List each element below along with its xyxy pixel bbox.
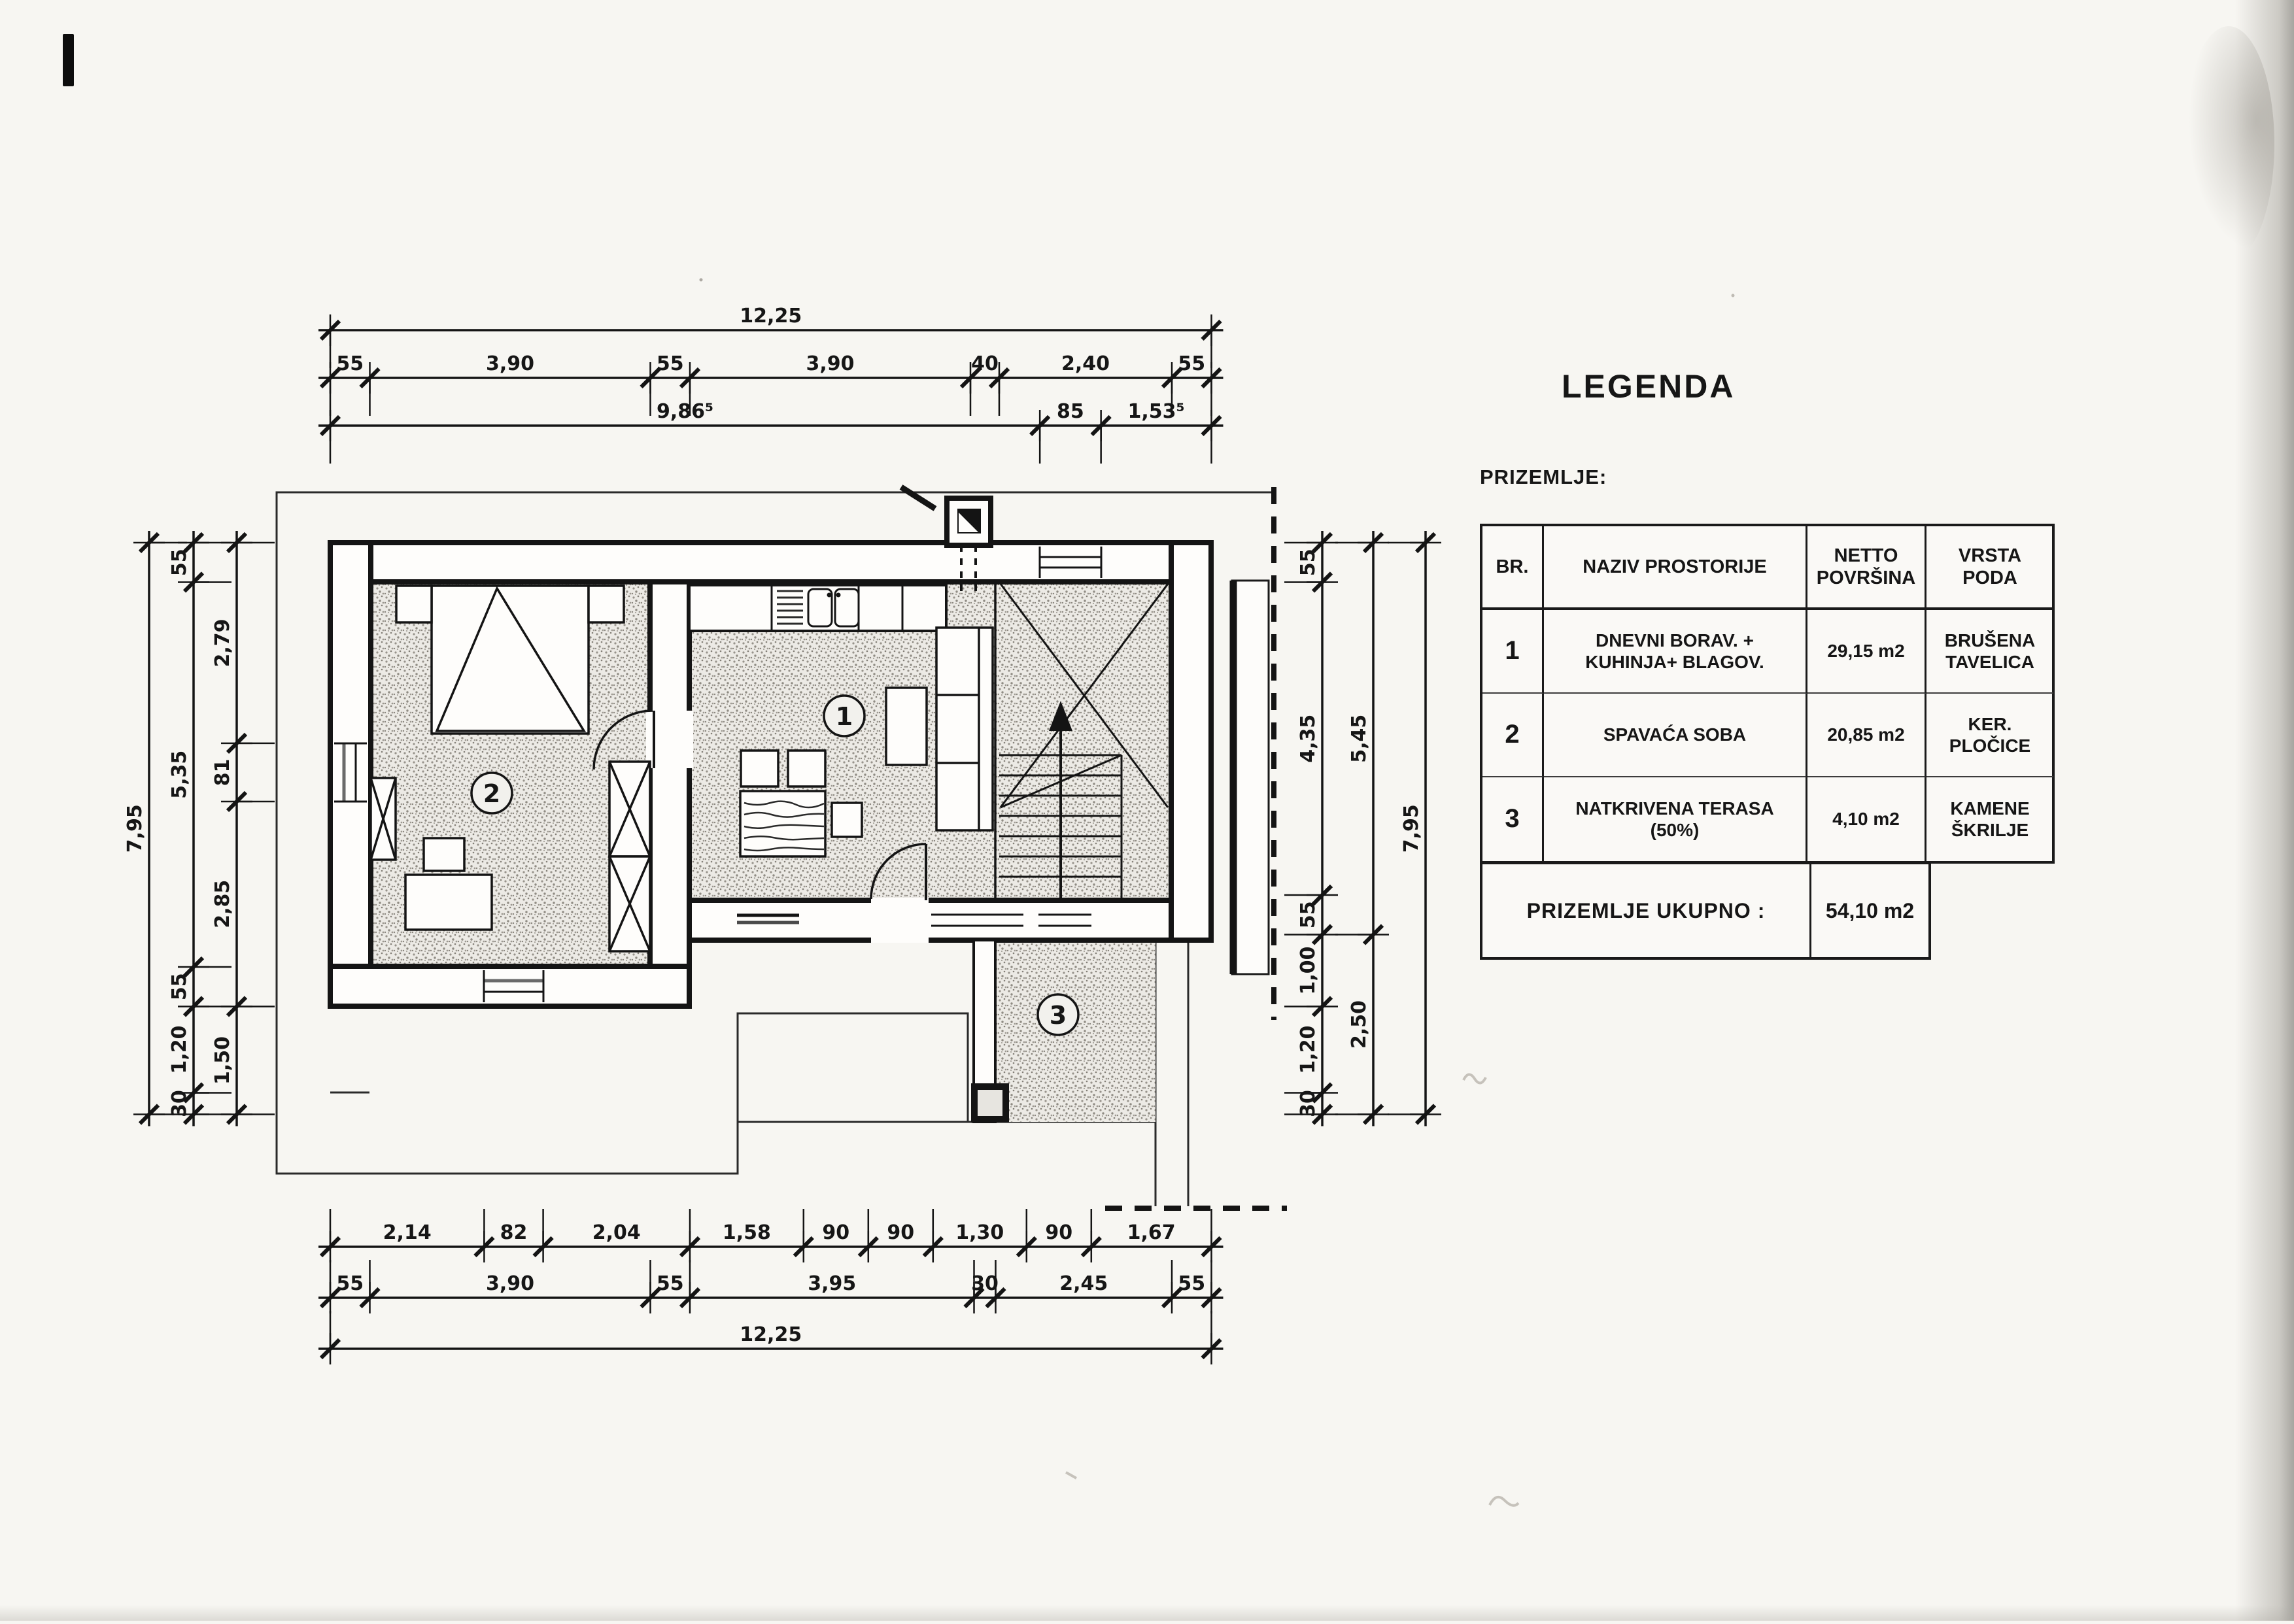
dim-label: 2,85 — [211, 880, 234, 928]
window-right-of-door — [931, 904, 1023, 936]
chair — [788, 751, 825, 787]
registration-mark — [63, 34, 74, 86]
dim-label: 1,20 — [168, 1025, 191, 1074]
scan-corner-curl — [2183, 26, 2274, 262]
dim-label: 90 — [887, 1221, 914, 1244]
dim-label: 55 — [336, 1272, 364, 1295]
dim-label: 55 — [1297, 901, 1320, 928]
window-left-wall — [334, 743, 367, 802]
room-1-label: 1 — [824, 696, 865, 736]
dim-label: 40 — [971, 352, 999, 375]
wall-room1-bottom — [689, 900, 1171, 940]
dim-chain-bottom-detail: 553,90553,95302,4555 — [318, 1260, 1224, 1313]
dim-label: 2,79 — [211, 618, 234, 667]
svg-text:1: 1 — [836, 702, 853, 731]
window-top-wall — [1038, 547, 1103, 578]
row-area: 29,15 m2 — [1807, 610, 1926, 694]
dim-chain-right-inner: 554,35551,001,2030 — [1284, 531, 1338, 1126]
row-area: 4,10 m2 — [1807, 777, 1926, 861]
faucet-dot — [827, 593, 832, 598]
dim-label: 1,53⁵ — [1127, 400, 1184, 423]
faucet-dot — [836, 593, 841, 598]
row-floor: KER. PLOČICE — [1926, 694, 2053, 777]
row-name: NATKRIVENA TERASA (50%) — [1544, 777, 1807, 861]
legend-row: 3 NATKRIVENA TERASA (50%) 4,10 m2 KAMENE… — [1482, 777, 2052, 861]
dim-label: 2,14 — [383, 1221, 432, 1244]
dim-chain-top-detail: 553,90553,90402,4055 — [318, 352, 1224, 416]
row-name: DNEVNI BORAV. + KUHINJA+ BLAGOV. — [1544, 610, 1807, 694]
row-br: 1 — [1482, 610, 1544, 694]
dim-label: 3,90 — [806, 352, 854, 375]
room-3-label: 3 — [1038, 994, 1078, 1035]
dim-label: 2,04 — [592, 1221, 641, 1244]
dim-label: 7,95 — [124, 804, 146, 853]
dim-label: 30 — [971, 1272, 999, 1295]
header-floor: VRSTA PODA — [1926, 526, 2053, 610]
dim-chain-right-overall: 7,95 — [1388, 531, 1441, 1126]
dim-label: 55 — [657, 352, 684, 375]
legend-row: 2 SPAVAĆA SOBA 20,85 m2 KER. PLOČICE — [1482, 694, 2052, 777]
row-br: 3 — [1482, 777, 1544, 861]
dim-label: 4,35 — [1297, 715, 1320, 763]
dim-label: 1,58 — [723, 1221, 771, 1244]
row-br: 2 — [1482, 694, 1544, 777]
dim-label: 90 — [1045, 1221, 1072, 1244]
window-room2-bottom — [484, 970, 543, 1002]
header-name: NAZIV PROSTORIJE — [1544, 526, 1807, 610]
room-2-label: 2 — [471, 773, 512, 813]
terrace-column — [974, 1087, 1006, 1119]
dim-label: 1,50 — [211, 1036, 234, 1085]
dim-chain-bottom-inner: 2,14822,041,5890901,30901,67 — [318, 1209, 1224, 1262]
dim-label: 85 — [1057, 400, 1084, 423]
dim-label: 9,86⁵ — [657, 400, 713, 423]
chair — [741, 751, 778, 787]
wall-right — [1171, 543, 1211, 940]
dim-label: 55 — [168, 973, 191, 1000]
dim-label: 2,40 — [1061, 352, 1110, 375]
header-br: BR. — [1482, 526, 1544, 610]
neighbor-wall — [1232, 581, 1269, 974]
dim-label: 7,95 — [1400, 804, 1423, 853]
footer-label: PRIZEMLJE UKUPNO : — [1482, 864, 1811, 957]
sofa — [936, 628, 993, 830]
coffee-table — [886, 688, 927, 765]
dim-label: 1,20 — [1297, 1025, 1320, 1074]
dim-label: 30 — [1297, 1090, 1320, 1117]
chair — [832, 803, 862, 837]
svg-text:2: 2 — [483, 779, 500, 808]
dim-label: 12,25 — [740, 305, 802, 328]
dim-label: 2,50 — [1348, 1000, 1371, 1049]
dim-label: 55 — [1178, 1272, 1205, 1295]
svg-text:3: 3 — [1050, 1001, 1067, 1030]
dim-label: 12,25 — [740, 1323, 802, 1346]
wardrobe-right — [609, 762, 650, 951]
row-name: SPAVAĆA SOBA — [1544, 694, 1807, 777]
dim-label: 30 — [168, 1090, 191, 1117]
dim-label: 3,90 — [486, 1272, 534, 1295]
roof-mark — [901, 487, 935, 509]
desk-table — [405, 875, 492, 930]
dim-chain-top-inner: 9,86⁵851,53⁵ — [318, 400, 1224, 464]
nightstand — [589, 586, 624, 622]
dim-label: 2,45 — [1059, 1272, 1108, 1295]
dim-chain-right-mid: 5,452,50 — [1335, 531, 1389, 1126]
kitchen-counter — [689, 585, 946, 631]
legend-title: LEGENDA — [1562, 367, 1732, 405]
dim-label: 55 — [657, 1272, 684, 1295]
entry-porch-step — [738, 1013, 968, 1122]
legend-table-header: BR. NAZIV PROSTORIJE NETTO POVRŠINA VRST… — [1482, 526, 2052, 610]
row-floor: KAMENE ŠKRILJE — [1926, 777, 2053, 861]
dim-label: 90 — [822, 1221, 849, 1244]
scanned-floor-plan-sheet: 1 2 3 12,25553,90553,90402,40559,86⁵851,… — [0, 0, 2294, 1621]
dim-label: 55 — [1297, 549, 1320, 576]
nightstand — [396, 586, 432, 622]
header-area: NETTO POVRŠINA — [1807, 526, 1926, 610]
dim-label: 1,30 — [955, 1221, 1004, 1244]
dim-label: 3,95 — [808, 1272, 856, 1295]
row-area: 20,85 m2 — [1807, 694, 1926, 777]
dim-label: 82 — [500, 1221, 528, 1244]
dim-chain-bottom-overall: 12,25 — [318, 1311, 1224, 1364]
footer-total: 54,10 m2 — [1811, 864, 1928, 957]
scan-bottom-shadow — [0, 1605, 2294, 1621]
dim-label: 5,35 — [168, 751, 191, 799]
dim-label: 1,67 — [1127, 1221, 1176, 1244]
dim-label: 55 — [1178, 352, 1205, 375]
dim-label: 5,45 — [1348, 715, 1371, 763]
legend-row: 1 DNEVNI BORAV. + KUHINJA+ BLAGOV. 29,15… — [1482, 610, 2052, 694]
dim-label: 3,90 — [486, 352, 534, 375]
row-floor: BRUŠENA TAVELICA — [1926, 610, 2053, 694]
legend-footer: PRIZEMLJE UKUPNO : 54,10 m2 — [1480, 862, 1931, 960]
wardrobe-left — [371, 778, 396, 860]
legend-subtitle: PRIZEMLJE: — [1480, 465, 1607, 489]
dim-label: 55 — [168, 549, 191, 576]
dim-label: 55 — [336, 352, 364, 375]
window-terrace-top — [1038, 904, 1091, 936]
dim-chain-left-inner: 2,79812,851,50 — [211, 531, 275, 1126]
wall-middle — [650, 582, 689, 1006]
legend-table: BR. NAZIV PROSTORIJE NETTO POVRŠINA VRST… — [1480, 524, 2055, 864]
dim-label: 1,00 — [1297, 946, 1320, 994]
dim-label: 81 — [211, 759, 234, 787]
desk-small — [424, 838, 464, 871]
